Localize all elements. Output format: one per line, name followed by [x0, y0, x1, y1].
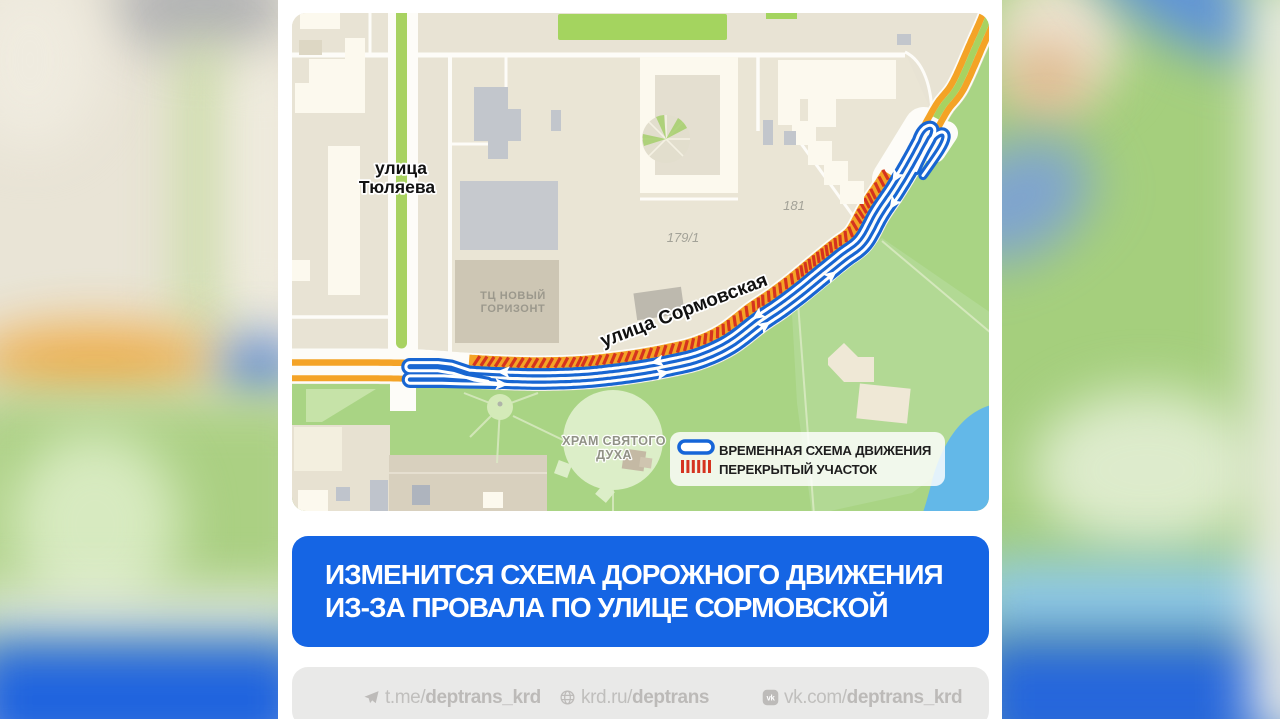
svg-text:ХРАМ СВЯТОГО: ХРАМ СВЯТОГО [562, 434, 666, 448]
svg-text:Тюляева: Тюляева [359, 177, 436, 197]
svg-text:ГОРИЗОНТ: ГОРИЗОНТ [481, 303, 546, 315]
svg-text:vk: vk [766, 694, 775, 703]
svg-text:ПЕРЕКРЫТЫЙ УЧАСТОК: ПЕРЕКРЫТЫЙ УЧАСТОК [719, 462, 878, 477]
svg-text:179/1: 179/1 [667, 230, 700, 245]
svg-text:181: 181 [783, 198, 805, 213]
svg-text:ТЦ НОВЫЙ: ТЦ НОВЫЙ [480, 289, 546, 302]
svg-text:ВРЕМЕННАЯ СХЕМА ДВИЖЕНИЯ: ВРЕМЕННАЯ СХЕМА ДВИЖЕНИЯ [719, 443, 931, 458]
svg-text:улица: улица [375, 158, 427, 178]
svg-text:ДУХА: ДУХА [596, 448, 632, 462]
